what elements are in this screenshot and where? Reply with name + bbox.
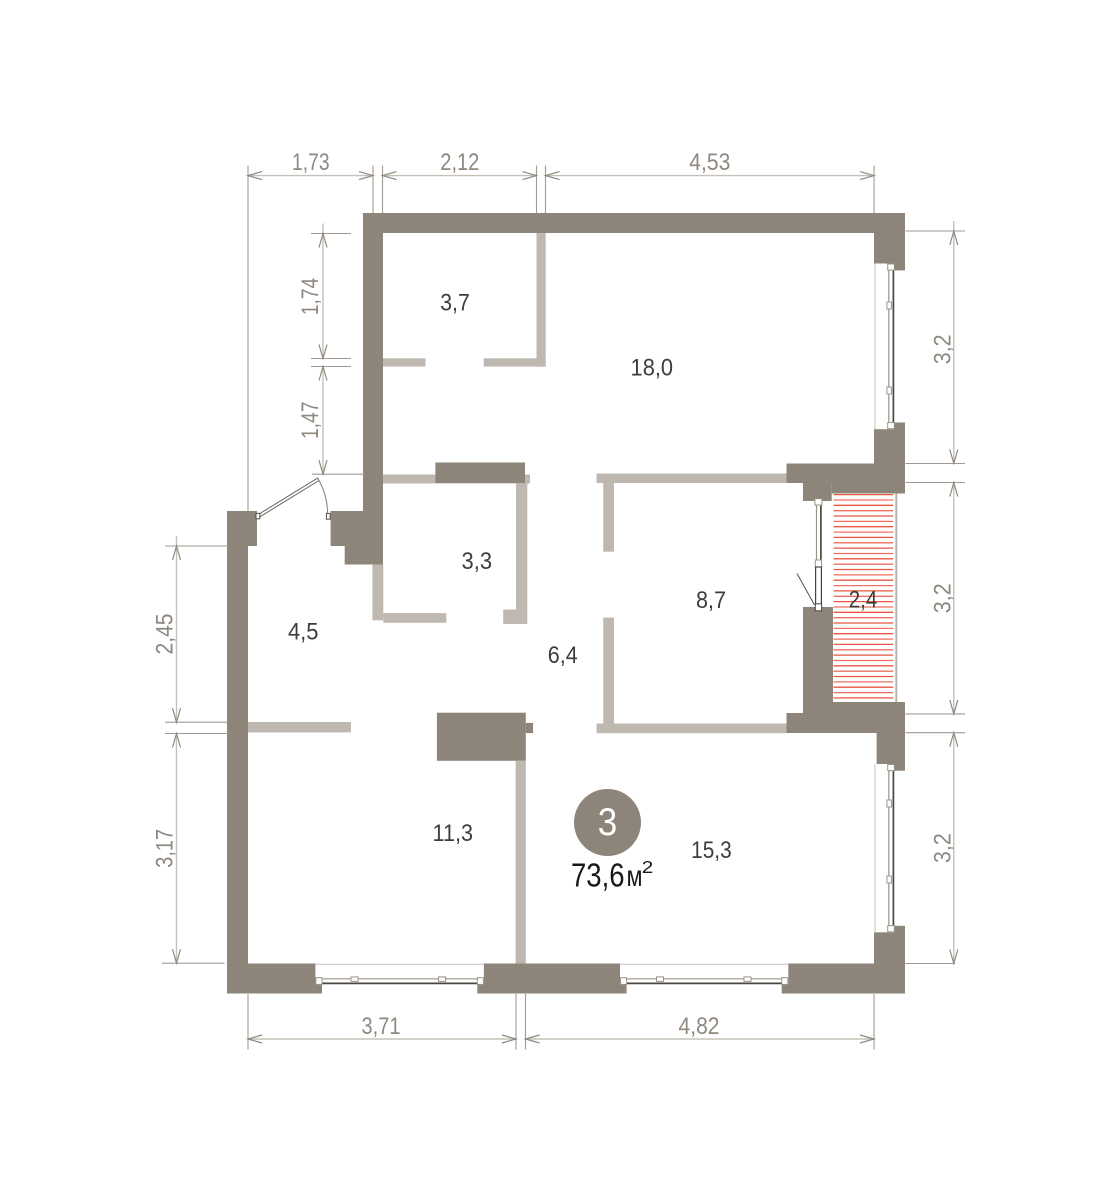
svg-text:73,6: 73,6 xyxy=(571,858,625,895)
svg-text:3,17: 3,17 xyxy=(153,829,179,868)
svg-text:2,12: 2,12 xyxy=(440,150,479,176)
svg-text:3,71: 3,71 xyxy=(362,1014,401,1040)
svg-text:11,3: 11,3 xyxy=(433,820,474,847)
svg-text:3,2: 3,2 xyxy=(931,334,957,364)
svg-text:8,7: 8,7 xyxy=(696,587,726,614)
svg-text:м: м xyxy=(627,860,643,893)
svg-text:2,4: 2,4 xyxy=(849,587,878,614)
svg-text:3,7: 3,7 xyxy=(440,290,470,317)
svg-text:4,82: 4,82 xyxy=(679,1014,720,1040)
svg-text:2,45: 2,45 xyxy=(153,614,179,655)
svg-text:3,3: 3,3 xyxy=(462,548,493,575)
svg-text:1,74: 1,74 xyxy=(298,278,324,316)
svg-text:3: 3 xyxy=(598,801,618,844)
svg-text:4,53: 4,53 xyxy=(689,150,730,176)
svg-text:1,73: 1,73 xyxy=(292,150,330,176)
svg-text:15,3: 15,3 xyxy=(691,837,732,864)
svg-text:3,2: 3,2 xyxy=(931,833,957,863)
svg-text:18,0: 18,0 xyxy=(631,354,674,381)
svg-text:1,47: 1,47 xyxy=(298,402,324,440)
svg-text:3,2: 3,2 xyxy=(931,583,957,613)
svg-text:4,5: 4,5 xyxy=(288,618,319,645)
svg-text:6,4: 6,4 xyxy=(548,642,578,669)
svg-text:2: 2 xyxy=(642,857,654,877)
